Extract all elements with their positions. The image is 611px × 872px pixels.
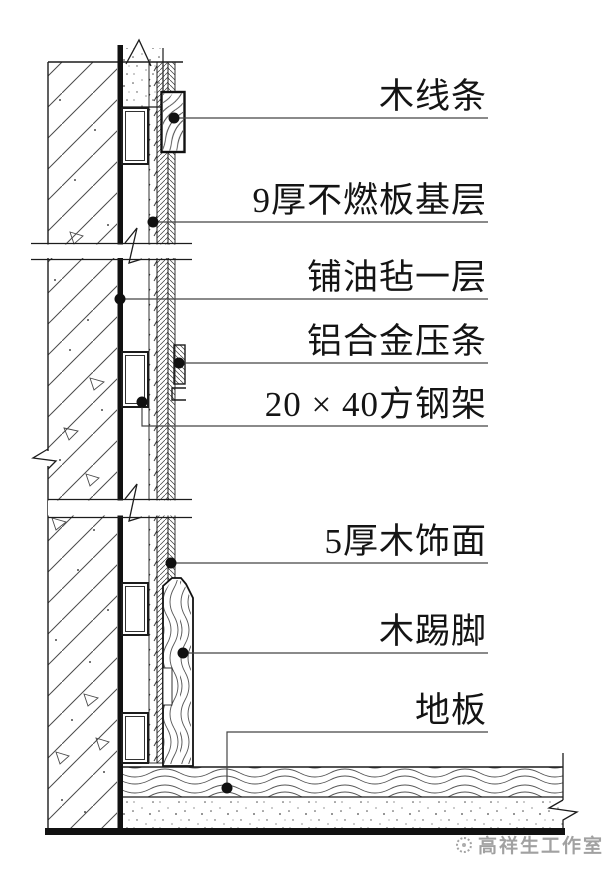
callout-wood-veneer-label: 5厚木饰面 (324, 521, 487, 563)
callout-skirting-label: 木踢脚 (379, 611, 487, 653)
leader-dot (222, 783, 233, 794)
leader-dot (166, 558, 177, 569)
steel-tubes (122, 108, 148, 763)
screed-layer (123, 799, 563, 828)
floor-assembly (45, 753, 577, 835)
callout-steel-frame-label: 20 × 40方钢架 (265, 384, 487, 426)
skirting-notch (163, 668, 172, 705)
callout-fireproof-board-label: 9厚不燃板基层 (252, 180, 487, 222)
steel-tube (122, 583, 148, 635)
leader-dot (148, 217, 159, 228)
wood-skirting (163, 578, 193, 766)
floor-board-layer (123, 767, 563, 797)
felt-layer (149, 62, 157, 763)
steel-tube (122, 108, 148, 164)
leader-dot (115, 294, 126, 305)
leader-dot (137, 397, 148, 408)
leader-dot (178, 648, 189, 659)
section-detail-drawing (0, 0, 611, 872)
leader-dot (169, 113, 180, 124)
steel-tube (122, 713, 148, 763)
wall-section-detail-page: 木线条 9厚不燃板基层 铺油毡一层 铝合金压条 20 × 40方钢架 5厚木饰面… (0, 0, 611, 872)
callout-aluminum-strip-label: 铝合金压条 (307, 321, 487, 363)
studio-logo-icon (456, 837, 472, 853)
leader-dot (174, 358, 185, 369)
callout-floor-label: 地板 (415, 690, 487, 732)
studio-name: 高祥生工作室 (478, 831, 604, 858)
wall-edge-break (33, 449, 56, 469)
callout-felt-label: 铺油毡一层 (307, 257, 487, 299)
studio-watermark: 高祥生工作室 (456, 831, 604, 858)
callout-molding-label: 木线条 (379, 76, 487, 118)
